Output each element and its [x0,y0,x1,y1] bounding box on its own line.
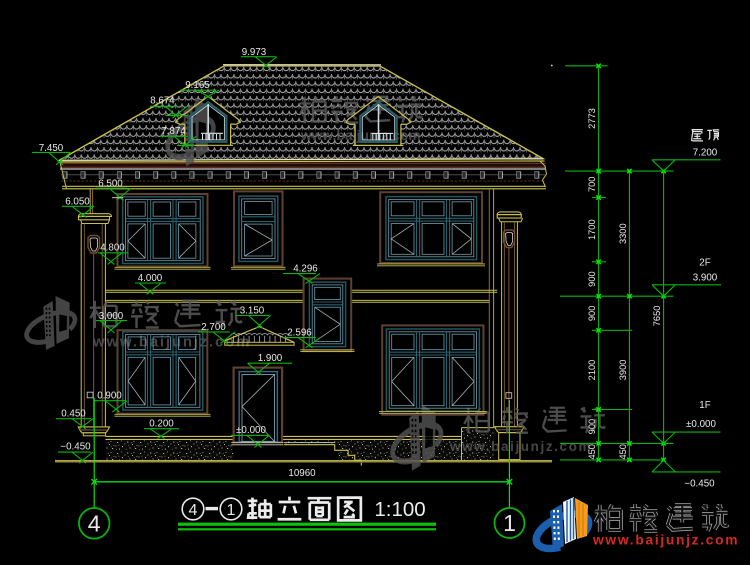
svg-text:−0.450: −0.450 [684,479,715,490]
svg-text:−0.450: −0.450 [60,442,91,453]
svg-text:3300: 3300 [618,223,628,244]
svg-text:2.596: 2.596 [287,328,312,339]
svg-text:4: 4 [88,511,101,537]
svg-text:3900: 3900 [618,360,628,381]
svg-text:9.165: 9.165 [185,80,210,91]
svg-text:2100: 2100 [587,360,597,381]
svg-text:1.900: 1.900 [258,353,283,364]
svg-text:10960: 10960 [288,468,316,479]
svg-text:7.874: 7.874 [161,126,186,137]
svg-text:±0.000: ±0.000 [686,419,716,430]
svg-text:7.200: 7.200 [693,148,718,159]
svg-text:1: 1 [227,502,236,519]
svg-text:450: 450 [587,444,597,460]
svg-text:4.000: 4.000 [138,273,163,284]
svg-text:www.baijunjz.com: www.baijunjz.com [592,533,739,548]
svg-text:900: 900 [587,271,597,287]
svg-text:4.296: 4.296 [293,264,318,275]
svg-text:1: 1 [503,510,516,536]
svg-text:450: 450 [618,444,628,460]
svg-text:7650: 7650 [652,306,662,327]
svg-text:0.200: 0.200 [149,419,174,430]
svg-text:3.150: 3.150 [240,306,265,317]
svg-text:3.900: 3.900 [693,272,718,283]
svg-text:900: 900 [587,306,597,322]
svg-text:8.674: 8.674 [150,96,175,107]
svg-text:1700: 1700 [587,219,597,240]
svg-text:±0.000: ±0.000 [236,425,266,436]
svg-text:900: 900 [587,419,597,435]
svg-text:2F: 2F [699,258,710,269]
svg-text:1:100: 1:100 [374,498,425,521]
svg-text:0.450: 0.450 [61,409,86,420]
svg-text:0.900: 0.900 [97,391,122,402]
svg-text:www.baijunjz.com: www.baijunjz.com [449,439,592,454]
svg-text:4.800: 4.800 [100,243,125,254]
svg-text:4: 4 [189,502,198,519]
svg-text:700: 700 [587,177,597,193]
svg-text:2773: 2773 [587,108,597,129]
svg-text:1F: 1F [699,400,710,411]
